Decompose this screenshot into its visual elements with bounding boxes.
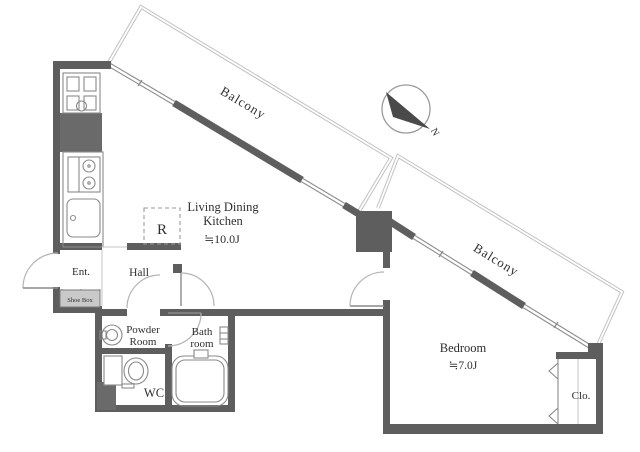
floor-plan: N Balcony Balcony Living Dining Kitchen … [0,0,640,452]
kitchen-duct-block [60,113,102,152]
entrance-label: Ent. [72,266,90,278]
ldk-label-line2: Kitchen [203,214,243,228]
powder-room-door [127,275,160,308]
ldk-window-wall [108,64,362,216]
refrigerator-label: R [157,222,167,238]
stove-icon [68,157,100,192]
north-label: N [428,126,441,138]
bathroom-label-line1: Bath [192,326,213,338]
closet-label: Clo. [572,390,591,402]
bedroom-size-label: ≒7.0J [449,360,478,372]
north-compass-icon: N [382,85,441,138]
bathroom-label-line2: room [190,338,214,350]
floor-edge-lines [102,247,127,306]
powder-room-label-line1: Powder [126,324,160,336]
kitchen-sink [67,199,100,237]
bedroom-door [350,272,384,306]
entrance-door [23,253,58,288]
wc-pipe-block [97,382,116,410]
powder-sink [100,325,122,345]
ldk-label-line1: Living Dining [187,200,259,214]
hall-ldk-door [181,273,214,306]
bedroom-window-wall [386,219,589,346]
powder-room-label-line2: Room [130,336,157,348]
shoe-box-label: Shoe Box [67,297,93,304]
balcony-1-label: Balcony [218,83,269,122]
washing-machine-pan [63,73,100,113]
hall-label: Hall [129,267,149,279]
toilet-icon [104,356,148,388]
bedroom-label: Bedroom [440,341,487,355]
floor-plan-drawing: N Balcony Balcony Living Dining Kitchen … [0,0,640,452]
wc-label: WC [144,386,164,400]
ldk-size-label: ≒10.0J [204,232,240,246]
